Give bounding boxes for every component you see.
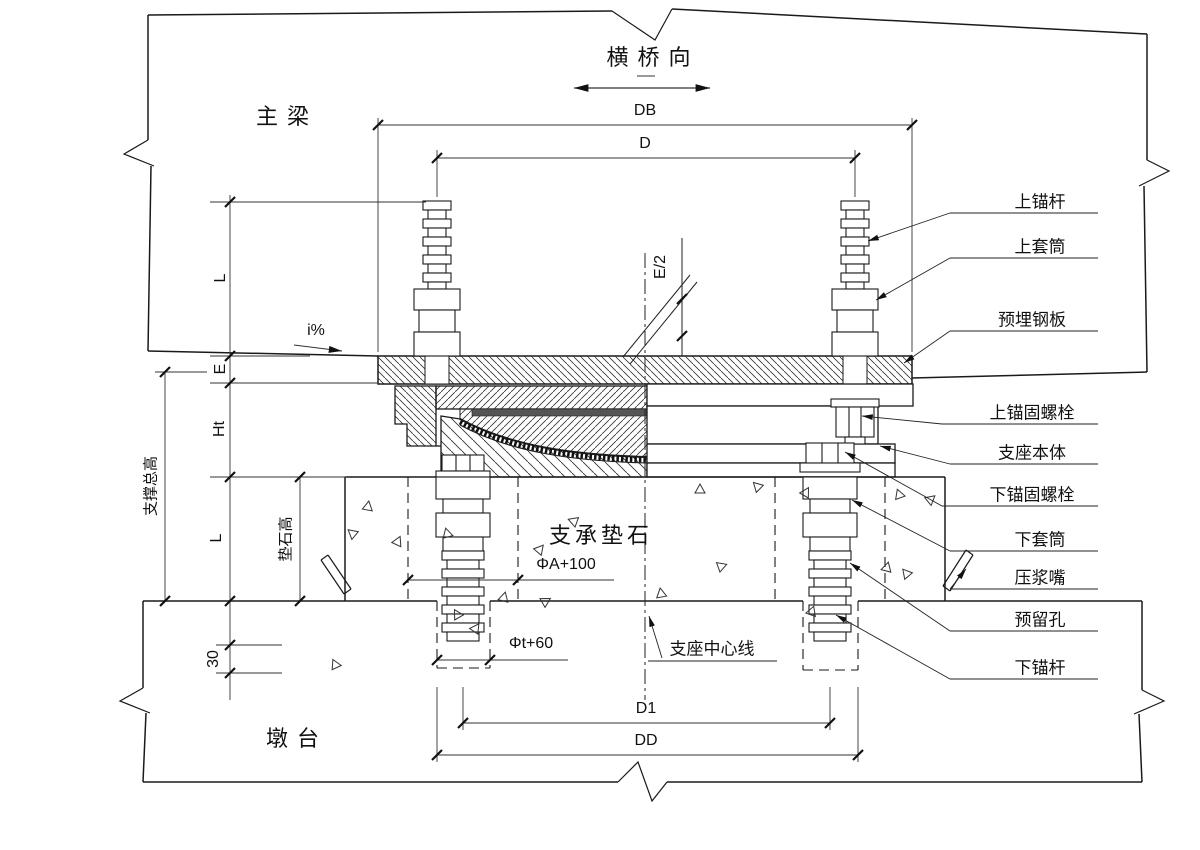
- drawing-canvas: 横桥向 主梁 墩台 支承垫石 支座中心线 i% DB D D1 DD E/2 L…: [0, 0, 1200, 850]
- callout-preformed-hole: 预留孔: [1015, 612, 1066, 629]
- callout-upper-sleeve: 上套筒: [1015, 239, 1066, 256]
- direction-label: 横桥向: [606, 47, 699, 69]
- callout-lower-anchor-bolt: 下锚固螺栓: [990, 487, 1075, 504]
- upper-anchor-left: [414, 201, 460, 356]
- callout-embedded-plate: 预埋钢板: [998, 312, 1066, 329]
- main-girder-label: 主梁: [256, 106, 318, 128]
- dim-d: D: [639, 136, 651, 152]
- dim-dd: DD: [634, 733, 657, 749]
- dim-lower-hole-dia: Φt+60: [509, 636, 553, 652]
- grout-pipe-left: [321, 555, 351, 594]
- bearing-centerline-label: 支座中心线: [670, 641, 755, 658]
- callout-lower-anchor-rod: 下锚杆: [1015, 660, 1066, 677]
- dim-support-total-height: 支撑总高: [144, 456, 159, 516]
- dim-l-lower: L: [209, 534, 225, 543]
- grout-pipe-right: [943, 550, 973, 591]
- callout-bearing-body: 支座本体: [998, 445, 1066, 462]
- dim-l-upper: L: [213, 274, 229, 283]
- dim-db: DB: [634, 103, 656, 119]
- dim-e-half: E/2: [653, 255, 669, 279]
- dim-upper-hole-dia: ΦA+100: [536, 557, 595, 573]
- dim-e: E: [213, 364, 229, 375]
- dim-d1: D1: [636, 701, 656, 717]
- callout-grout-nozzle: 压浆嘴: [1015, 570, 1066, 587]
- linework-svg: [0, 0, 1200, 850]
- lower-anchor-left: [436, 455, 490, 641]
- callout-upper-anchor-rod: 上锚杆: [1015, 194, 1066, 211]
- callout-lower-sleeve: 下套筒: [1015, 532, 1066, 549]
- slope-label: i%: [307, 323, 325, 339]
- pedestal-label: 支承垫石: [549, 525, 653, 547]
- dim-pedestal-height: 垫石高: [279, 516, 294, 561]
- dim-ht: Ht: [212, 421, 228, 437]
- dim-30: 30: [206, 650, 222, 668]
- upper-anchor-right: [831, 201, 879, 444]
- pier-label: 墩台: [266, 728, 328, 750]
- callout-upper-anchor-bolt: 上锚固螺栓: [990, 405, 1075, 422]
